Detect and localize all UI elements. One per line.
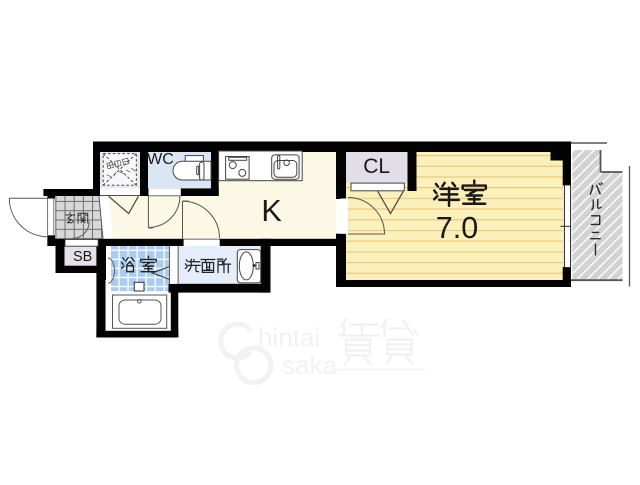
svg-text:WC: WC xyxy=(147,151,174,168)
svg-text:K: K xyxy=(261,194,281,228)
svg-text:7.0: 7.0 xyxy=(436,211,478,245)
svg-text:CL: CL xyxy=(363,155,390,178)
svg-text:saka: saka xyxy=(282,350,337,380)
svg-text:hintai: hintai xyxy=(258,322,320,352)
svg-text:SB: SB xyxy=(73,249,92,265)
